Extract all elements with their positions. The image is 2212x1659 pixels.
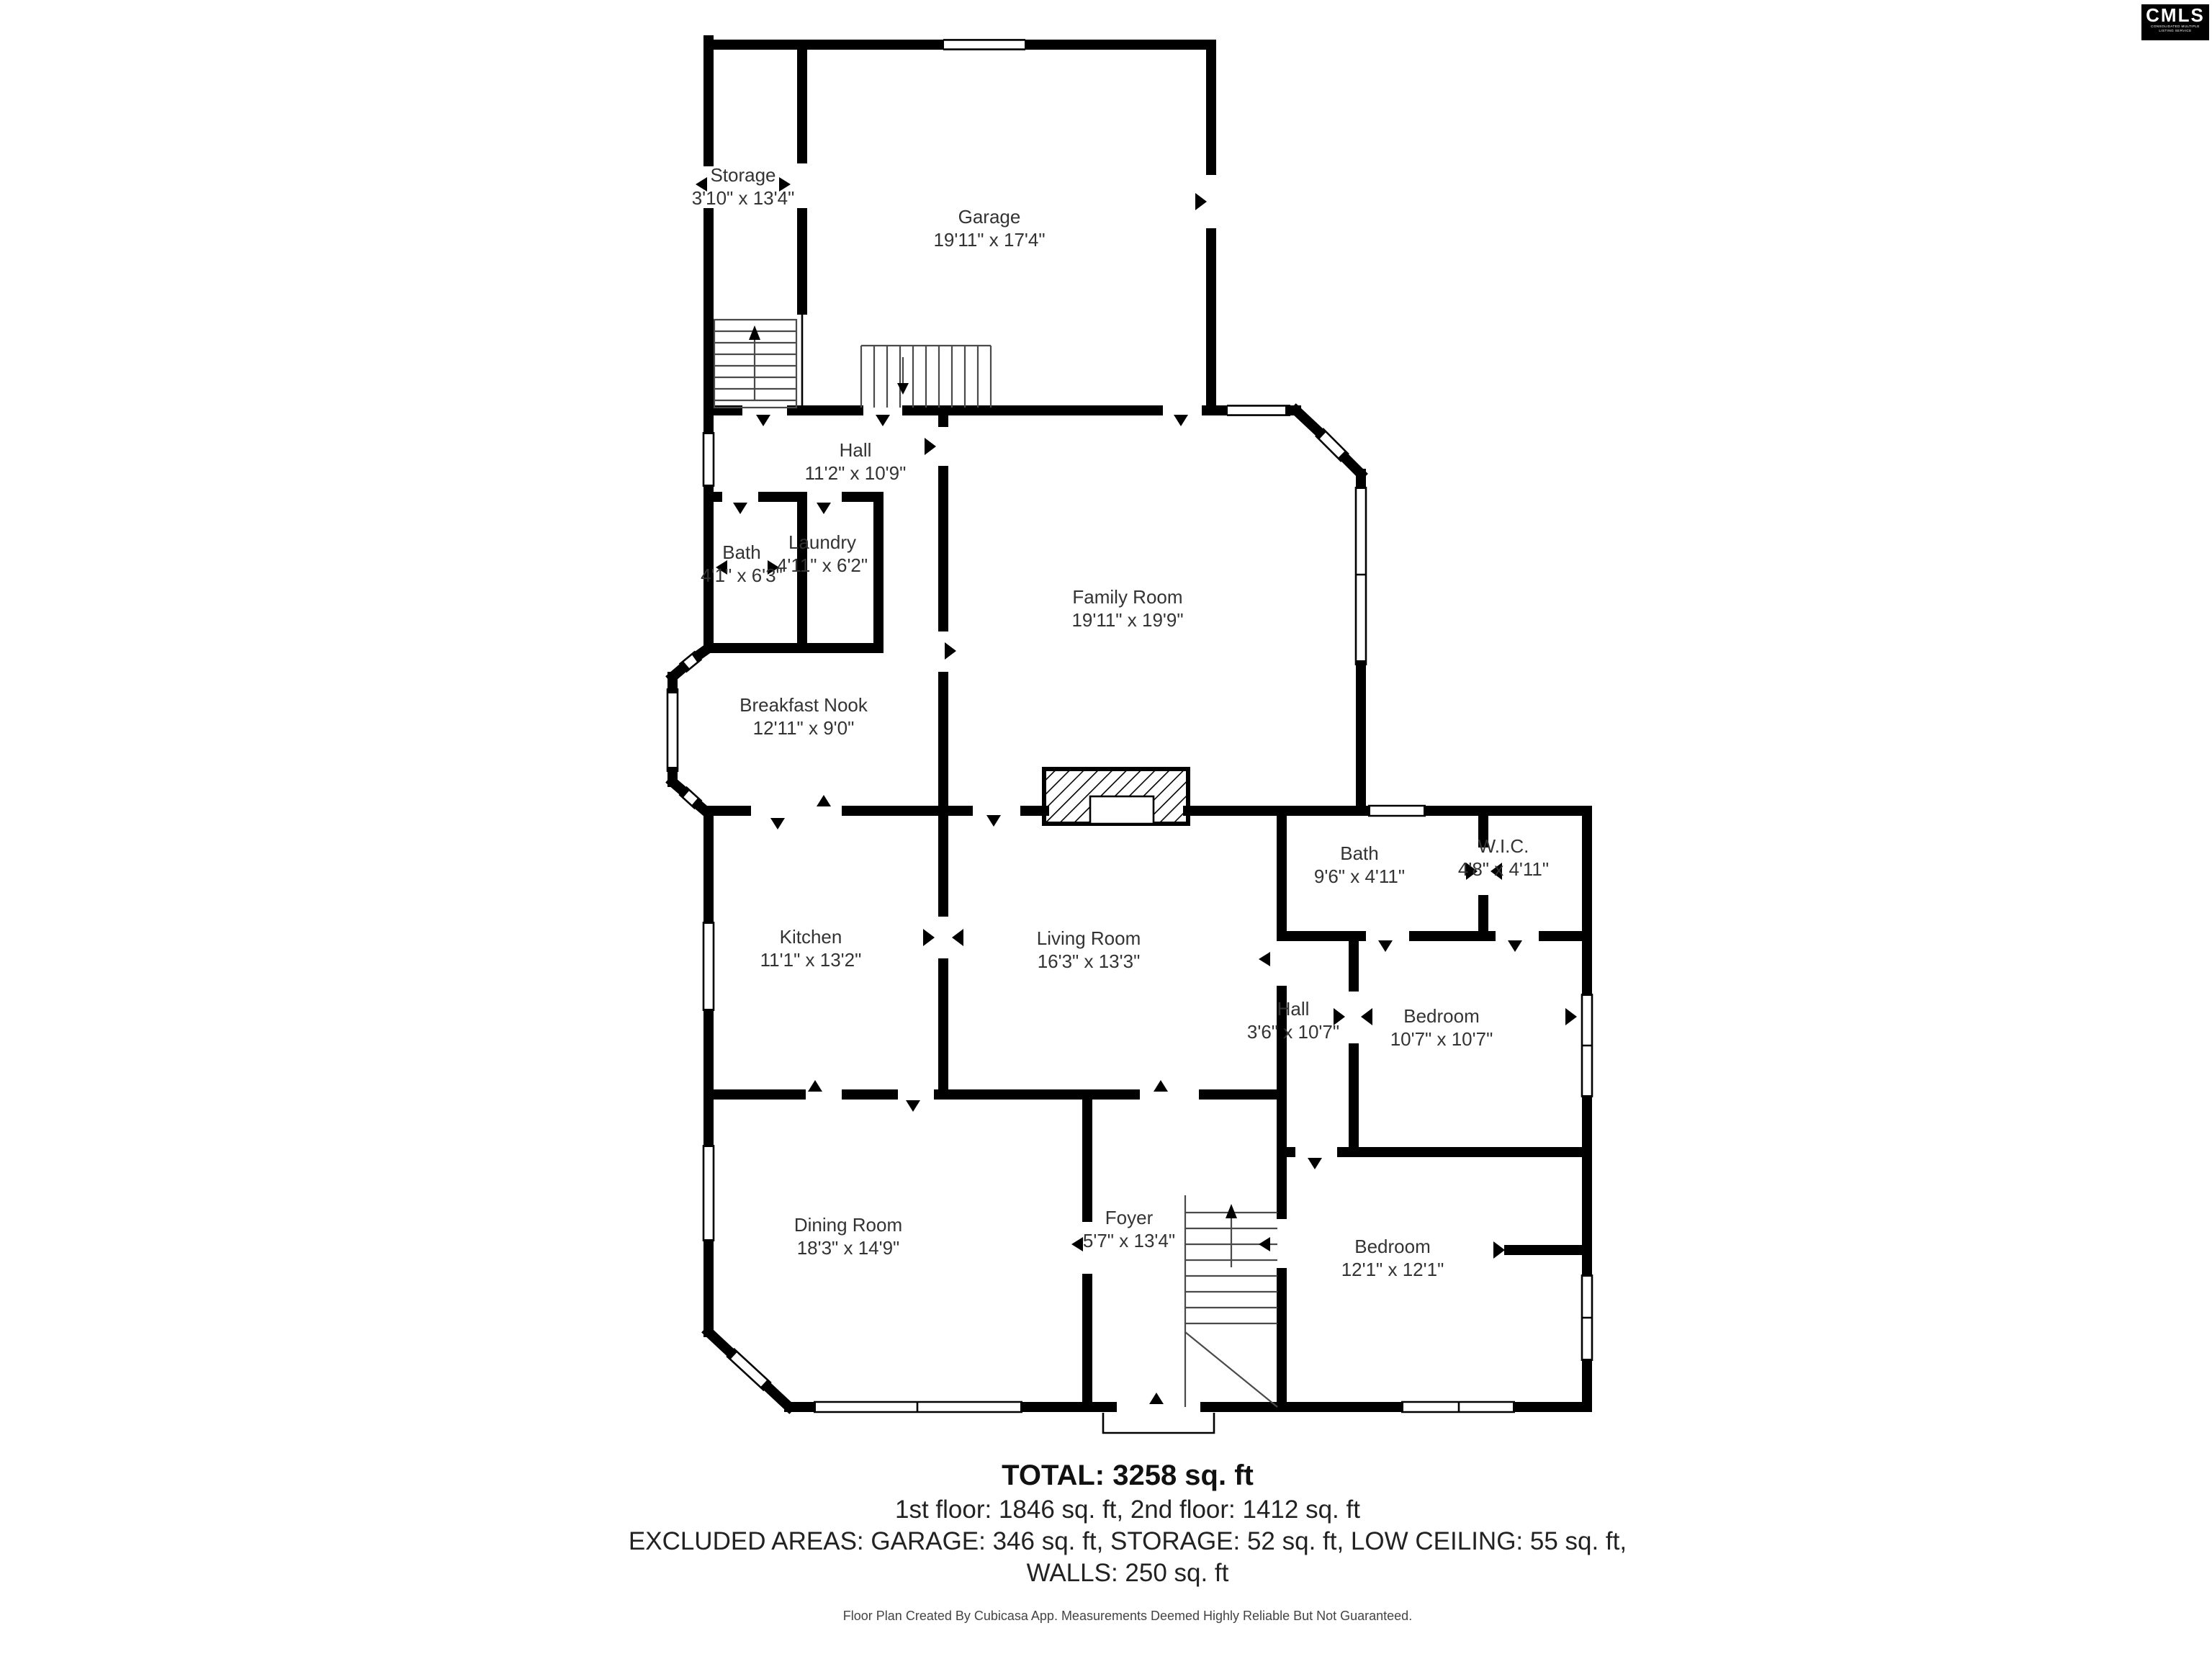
room-name: Bedroom [1341,1236,1444,1259]
room-name: Family Room [1071,586,1183,609]
room-dims: 11'2" x 10'9" [805,462,907,485]
room-name: Bath [1314,842,1405,866]
room-dims: 3'10" x 13'4" [692,187,795,210]
cmls-logo-subtext: CONSOLIDATED MULTIPLE LISTING SERVICE [2141,26,2209,34]
stairs-garage [861,346,991,408]
room-name: Storage [692,164,795,187]
floor-plan-drawing [0,0,2212,1659]
room-dims: 5'7" x 13'4" [1083,1230,1175,1253]
room-label-dining-room: Dining Room 18'3" x 14'9" [794,1214,902,1260]
room-dims: 19'11" x 17'4" [933,229,1045,252]
room-label-kitchen: Kitchen 11'1" x 13'2" [760,926,862,972]
room-name: Living Room [1037,927,1141,950]
area-summary: TOTAL: 3258 sq. ft 1st floor: 1846 sq. f… [22,1460,2212,1588]
room-name: Hall [1247,998,1339,1021]
room-label-laundry: Laundry 4'11" x 6'2" [777,531,868,577]
room-label-hall-2: Hall 3'6" x 10'7" [1247,998,1339,1044]
disclaimer-text: Floor Plan Created By Cubicasa App. Meas… [22,1609,2212,1623]
room-label-bedroom-2: Bedroom 12'1" x 12'1" [1341,1236,1444,1282]
room-name: W.I.C. [1458,835,1549,858]
room-dims: 12'11" x 9'0" [739,717,868,740]
room-dims: 16'3" x 13'3" [1037,950,1141,974]
room-name: Breakfast Nook [739,694,868,717]
room-dims: 19'11" x 19'9" [1071,609,1183,632]
room-label-storage: Storage 3'10" x 13'4" [692,164,795,210]
room-dims: 4'11" x 6'2" [777,554,868,577]
cmls-logo: CMLS CONSOLIDATED MULTIPLE LISTING SERVI… [2141,4,2209,40]
room-dims: 18'3" x 14'9" [794,1237,902,1260]
room-dims: 10'7" x 10'7" [1390,1028,1493,1051]
room-label-bath: Bath 4'1" x 6'3" [701,541,783,588]
stairs-foyer [1185,1195,1277,1407]
room-label-foyer: Foyer 5'7" x 13'4" [1083,1207,1175,1253]
room-label-wic: W.I.C. 4'8" x 4'11" [1458,835,1549,881]
floor-plan-page: Storage 3'10" x 13'4" Garage 19'11" x 17… [0,0,2212,1659]
room-dims: 9'6" x 4'11" [1314,866,1405,889]
room-name: Foyer [1083,1207,1175,1230]
room-name: Bath [701,541,783,565]
room-label-bedroom-1: Bedroom 10'7" x 10'7" [1390,1005,1493,1051]
room-label-living-room: Living Room 16'3" x 13'3" [1037,927,1141,974]
stairs-storage [714,320,796,408]
room-label-hall: Hall 11'2" x 10'9" [805,439,907,485]
room-dims: 4'8" x 4'11" [1458,858,1549,881]
room-name: Hall [805,439,907,462]
room-dims: 12'1" x 12'1" [1341,1259,1444,1282]
room-name: Bedroom [1390,1005,1493,1028]
fireplace [1044,769,1188,824]
excluded-areas: EXCLUDED AREAS: GARAGE: 346 sq. ft, STOR… [22,1525,2212,1557]
room-dims: 3'6" x 10'7" [1247,1021,1339,1044]
room-label-family-room: Family Room 19'11" x 19'9" [1071,586,1183,632]
room-label-bath-2: Bath 9'6" x 4'11" [1314,842,1405,889]
room-name: Dining Room [794,1214,902,1237]
room-label-breakfast-nook: Breakfast Nook 12'11" x 9'0" [739,694,868,740]
room-name: Kitchen [760,926,862,949]
room-name: Garage [933,206,1045,229]
walls-area: WALLS: 250 sq. ft [22,1557,2212,1588]
floor-areas: 1st floor: 1846 sq. ft, 2nd floor: 1412 … [22,1493,2212,1525]
total-area: TOTAL: 3258 sq. ft [22,1460,2212,1493]
room-dims: 11'1" x 13'2" [760,949,862,972]
room-name: Laundry [777,531,868,554]
room-dims: 4'1" x 6'3" [701,565,783,588]
cmls-logo-text: CMLS [2141,4,2209,26]
room-label-garage: Garage 19'11" x 17'4" [933,206,1045,252]
